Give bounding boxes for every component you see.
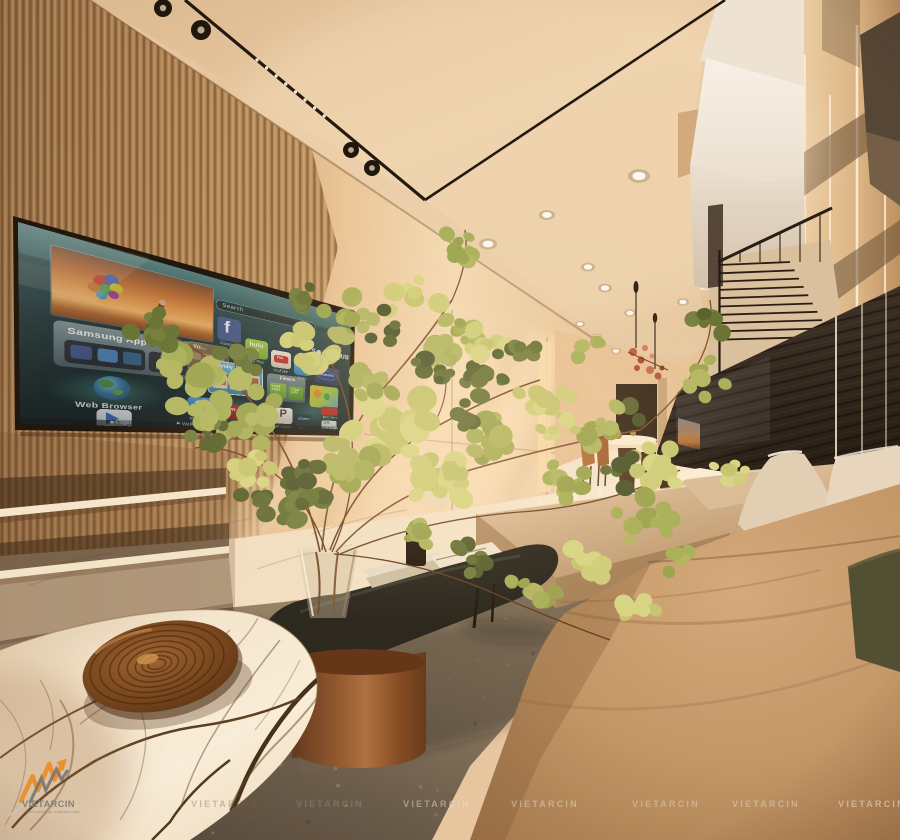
svg-text:ARCHITECTURE INTERNATIONAL: ARCHITECTURE INTERNATIONAL [26,810,80,814]
svg-text:VIETARCIN: VIETARCIN [403,799,471,809]
svg-text:VIETARCIN: VIETARCIN [191,799,259,809]
svg-text:VIETARCIN: VIETARCIN [632,799,700,809]
svg-text:VIETARCIN: VIETARCIN [511,799,579,809]
svg-text:VIETARCIN: VIETARCIN [22,799,75,809]
svg-text:VIETARCIN: VIETARCIN [732,799,800,809]
svg-text:VIETARCIN: VIETARCIN [296,799,364,809]
svg-text:VIETARCIN: VIETARCIN [838,799,900,809]
